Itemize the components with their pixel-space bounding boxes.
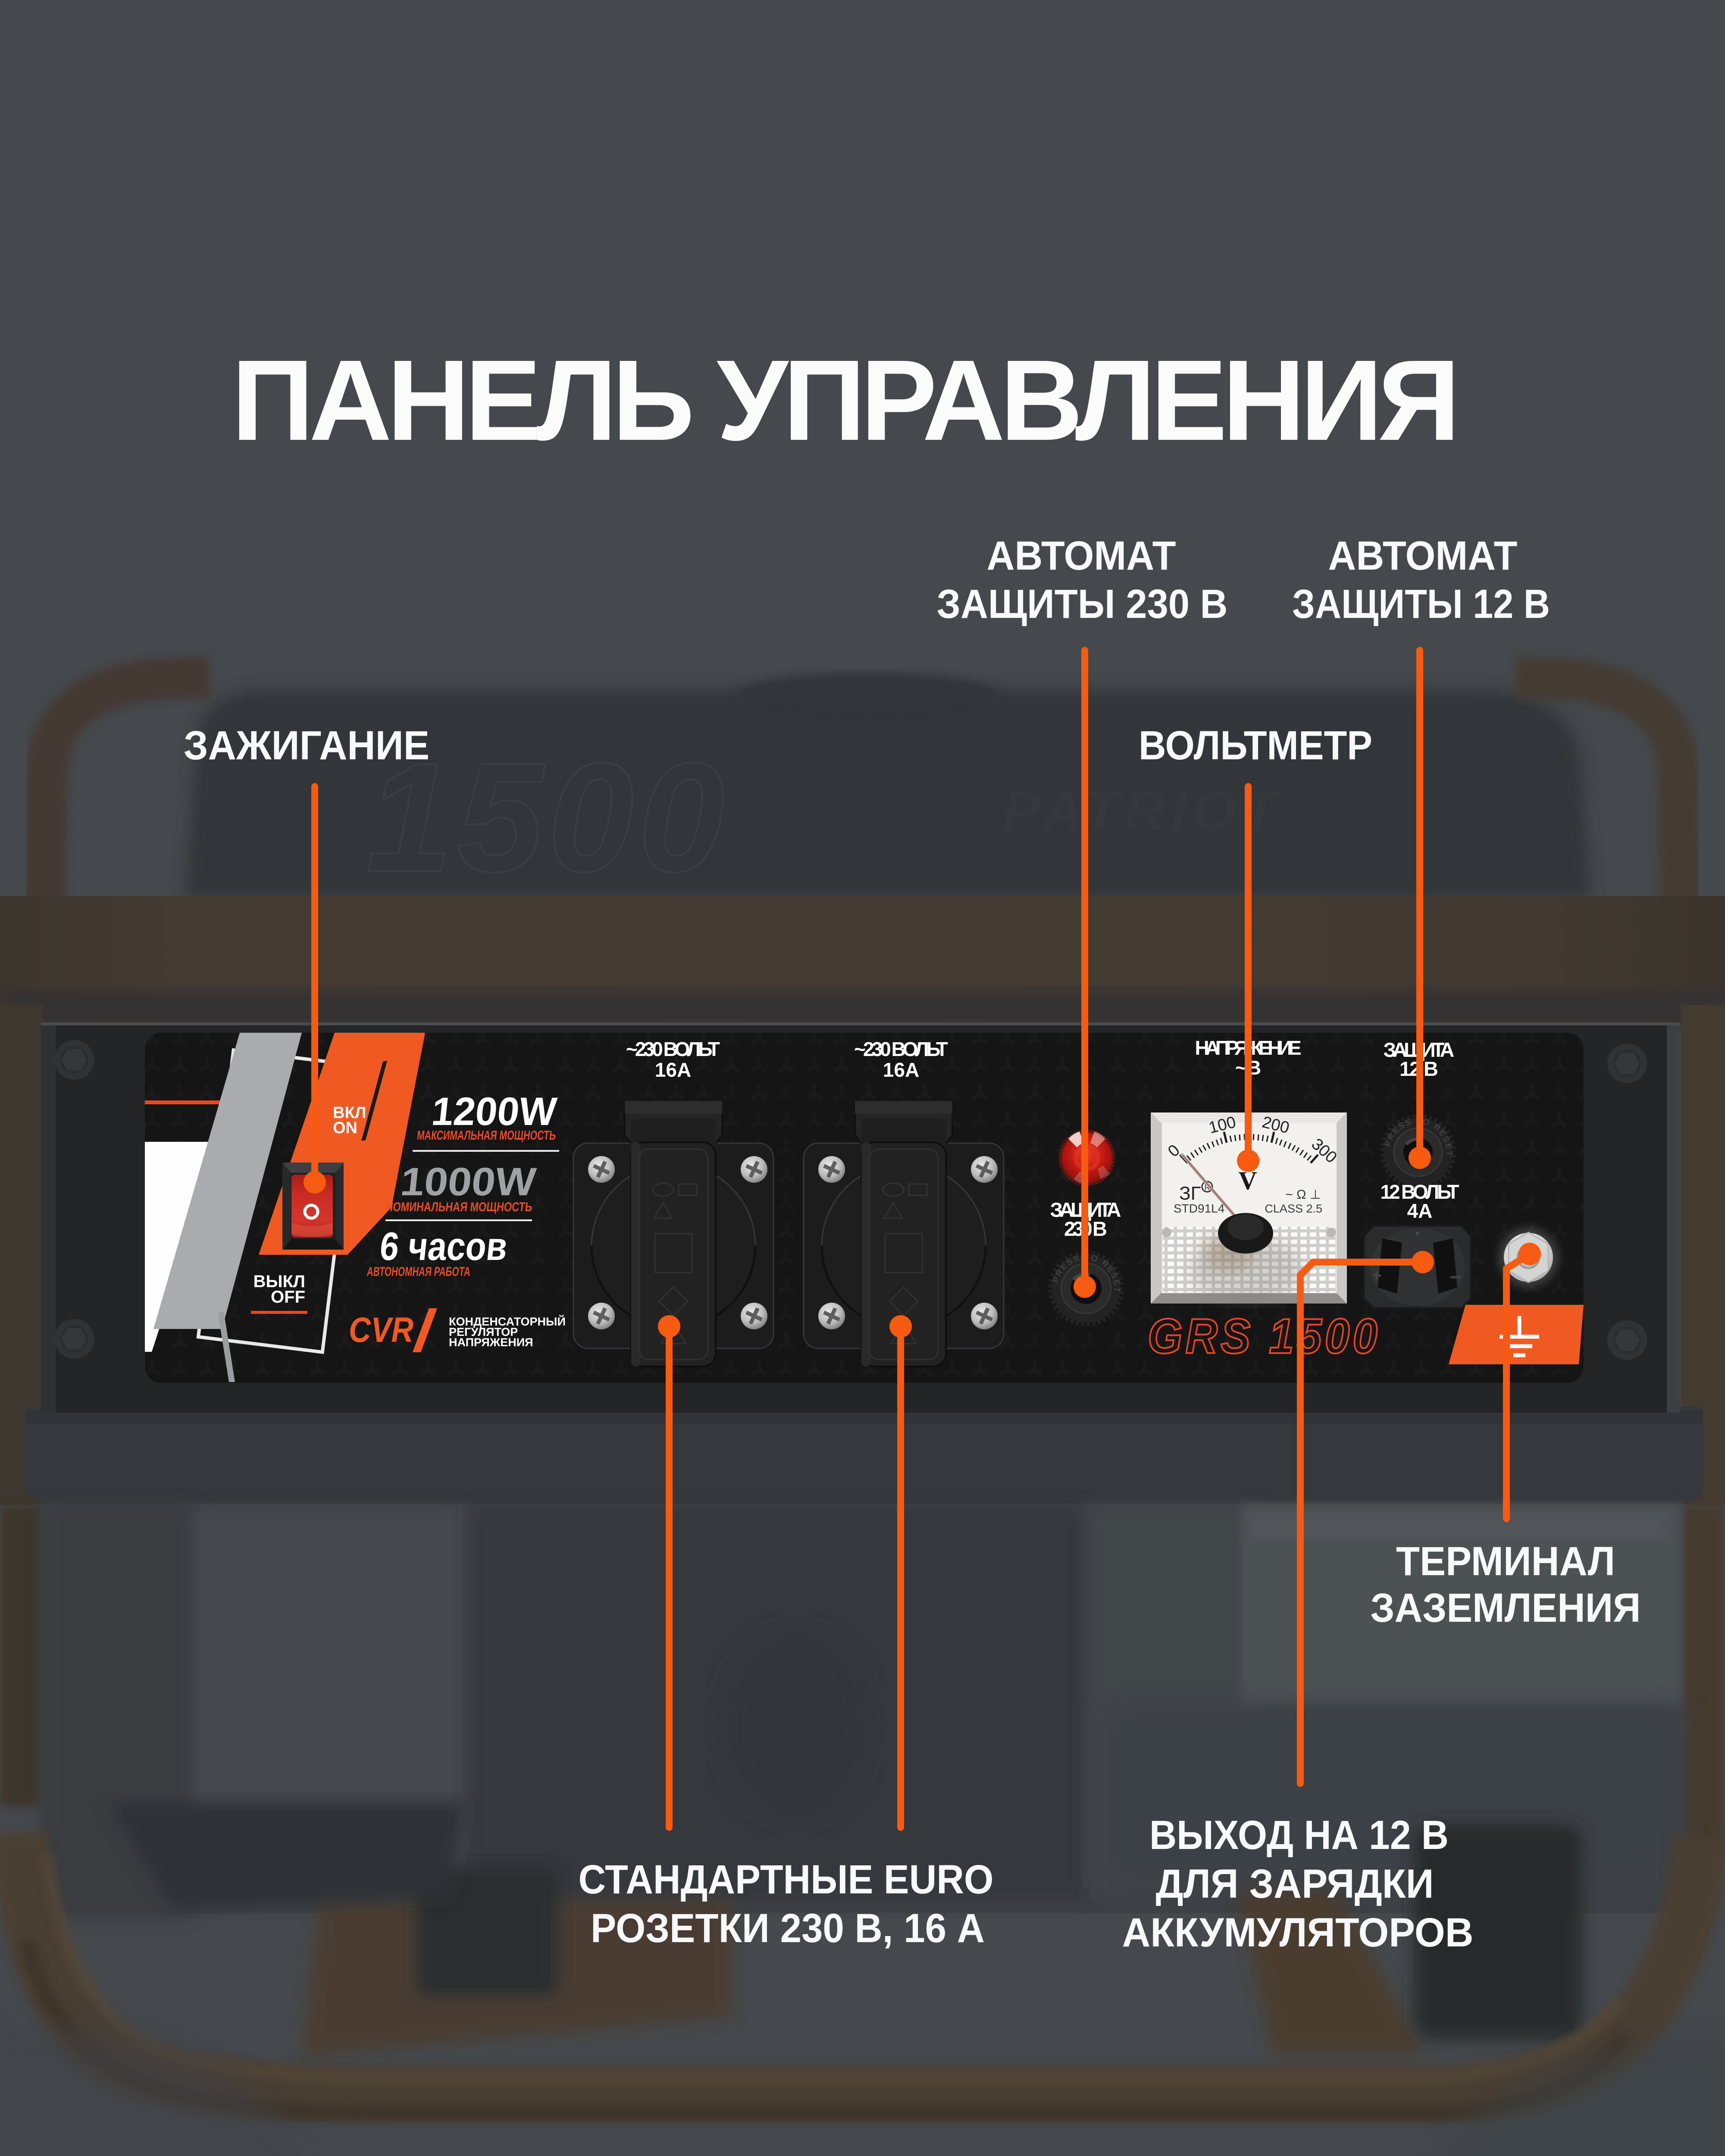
svg-text:PATRIOT: PATRIOT <box>1002 779 1282 842</box>
svg-text:4А: 4А <box>1407 1200 1433 1222</box>
svg-text:АВТОНОМНАЯ РАБОТА: АВТОНОМНАЯ РАБОТА <box>366 1265 471 1279</box>
svg-text:АККУМУЛЯТОРОВ: АККУМУЛЯТОРОВ <box>1122 1910 1474 1955</box>
svg-text:CLASS 2.5: CLASS 2.5 <box>1265 1202 1322 1215</box>
svg-text:16А: 16А <box>655 1059 691 1081</box>
svg-text:GRS 1500: GRS 1500 <box>1148 1309 1381 1364</box>
svg-text:ON: ON <box>333 1119 357 1137</box>
svg-text:ЗГ: ЗГ <box>1179 1183 1201 1204</box>
svg-text:OFF: OFF <box>271 1288 305 1307</box>
svg-text:ЗАЩИТЫ 230 В: ЗАЩИТЫ 230 В <box>937 581 1228 627</box>
svg-text:ЗАЩИТЫ 12 В: ЗАЩИТЫ 12 В <box>1292 581 1550 627</box>
svg-text:ВЫХОД НА 12 В: ВЫХОД НА 12 В <box>1149 1812 1449 1858</box>
svg-text:ТЕРМИНАЛ: ТЕРМИНАЛ <box>1396 1539 1615 1584</box>
svg-text:НОМИНАЛЬНАЯ МОЩНОСТЬ: НОМИНАЛЬНАЯ МОЩНОСТЬ <box>385 1200 533 1214</box>
svg-text:~ Ω ⊥: ~ Ω ⊥ <box>1285 1188 1321 1202</box>
svg-text:НАПРЯЖЕНИЯ: НАПРЯЖЕНИЯ <box>449 1336 533 1349</box>
svg-text:1000W: 1000W <box>398 1159 538 1204</box>
svg-text:АВТОМАТ: АВТОМАТ <box>987 533 1176 579</box>
svg-text:~230 ВОЛЬТ: ~230 ВОЛЬТ <box>626 1038 720 1060</box>
svg-text:ДЛЯ ЗАРЯДКИ: ДЛЯ ЗАРЯДКИ <box>1156 1861 1434 1907</box>
svg-text:ЗАЗЕМЛЕНИЯ: ЗАЗЕМЛЕНИЯ <box>1371 1585 1641 1631</box>
svg-text:ПАНЕЛЬ УПРАВЛЕНИЯ: ПАНЕЛЬ УПРАВЛЕНИЯ <box>232 336 1460 464</box>
svg-text:АВТОМАТ: АВТОМАТ <box>1328 533 1518 579</box>
svg-text:СТАНДАРТНЫЕ EURO: СТАНДАРТНЫЕ EURO <box>579 1857 994 1902</box>
svg-text:ВОЛЬТМЕТР: ВОЛЬТМЕТР <box>1139 723 1372 768</box>
svg-text:CVR: CVR <box>349 1310 413 1350</box>
svg-text:~230 ВОЛЬТ: ~230 ВОЛЬТ <box>854 1038 948 1060</box>
svg-text:ЗАЖИГАНИЕ: ЗАЖИГАНИЕ <box>184 723 429 768</box>
svg-text:16А: 16А <box>883 1059 919 1081</box>
svg-text:6 часов: 6 часов <box>378 1224 510 1269</box>
svg-text:STD91L4: STD91L4 <box>1174 1202 1224 1215</box>
svg-text:МАКСИМАЛЬНАЯ МОЩНОСТЬ: МАКСИМАЛЬНАЯ МОЩНОСТЬ <box>416 1128 556 1143</box>
svg-text:РОЗЕТКИ 230 В, 16 А: РОЗЕТКИ 230 В, 16 А <box>591 1905 985 1951</box>
svg-text:1200W: 1200W <box>429 1089 559 1134</box>
